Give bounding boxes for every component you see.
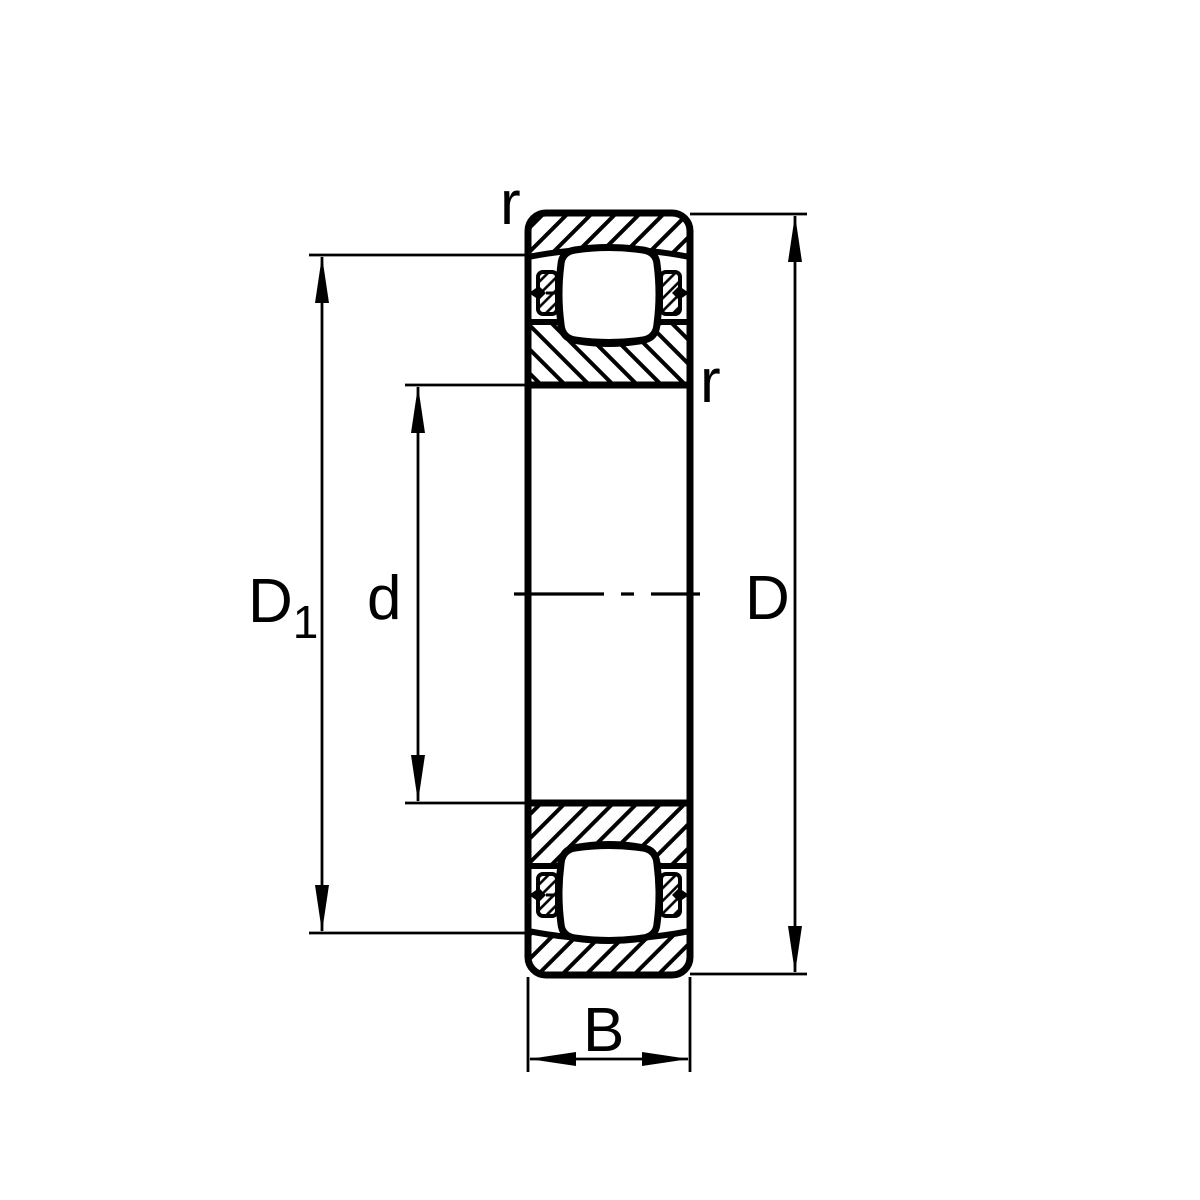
label-D: D [745, 564, 790, 633]
dim-arrow-down-icon [315, 885, 329, 932]
dim-arrow-up-icon [788, 215, 802, 262]
bearing-cross-section-drawing: r r D1 d D B [0, 0, 1200, 1200]
bearing-bottom-section [528, 806, 690, 974]
drawing-canvas: r r D1 d D B [0, 0, 1200, 1200]
dim-arrow-left-icon [529, 1052, 576, 1066]
label-D1-main: D [248, 567, 293, 636]
barrel-roller-bottom [559, 846, 659, 941]
label-B: B [583, 996, 624, 1065]
dim-arrow-up-icon [315, 256, 329, 303]
dim-arrow-right-icon [642, 1052, 689, 1066]
label-r-inner: r [700, 347, 721, 416]
label-D1: D1 [248, 567, 318, 648]
label-d: d [367, 564, 401, 633]
barrel-roller-top [559, 248, 659, 343]
dim-arrow-down-icon [788, 926, 802, 973]
bearing-top-section [528, 214, 690, 382]
dim-arrow-up-icon [411, 386, 425, 433]
label-D1-sub: 1 [293, 596, 319, 648]
label-r-top: r [500, 169, 521, 238]
dim-arrow-down-icon [411, 755, 425, 802]
dimension-d [405, 385, 528, 803]
